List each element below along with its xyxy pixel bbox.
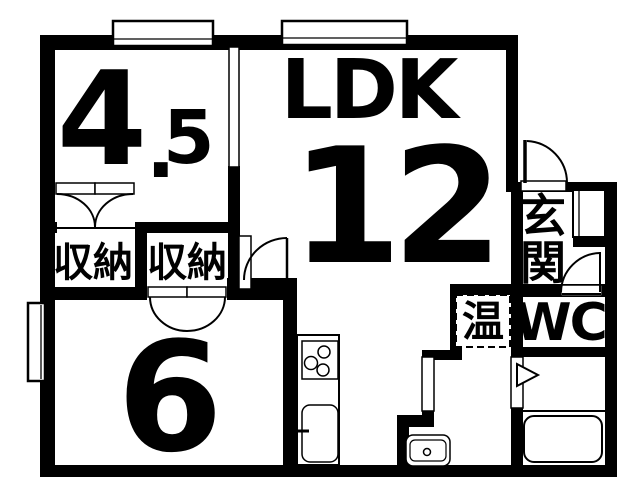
closet2-door-leaf-right bbox=[187, 287, 226, 297]
kitchen-sink bbox=[302, 405, 338, 462]
wall-room6-top-west bbox=[40, 287, 147, 300]
water-heater-label: 温 bbox=[462, 297, 504, 346]
washroom-doorway bbox=[422, 357, 434, 411]
room6-size-label: 6 bbox=[117, 309, 223, 486]
floor-plan-drawing: 4 . 5 LDK 12 収納 収納 6 玄 関 WC 温 bbox=[0, 0, 640, 495]
floor-plan: 4 . 5 LDK 12 収納 収納 6 玄 関 WC 温 bbox=[0, 0, 640, 495]
window-room6 bbox=[28, 303, 45, 381]
room45-size-label: 4 bbox=[57, 43, 147, 195]
stove-burner bbox=[317, 364, 329, 376]
door-panel-ldk-room6 bbox=[239, 236, 251, 289]
ldk-size-label: 12 bbox=[291, 113, 494, 300]
entrance-label-char2: 関 bbox=[520, 236, 566, 290]
wall-room6-right bbox=[283, 280, 297, 470]
wall-closet2-top bbox=[143, 222, 237, 233]
shoe-cabinet bbox=[573, 190, 605, 237]
wc-label: WC bbox=[514, 293, 606, 353]
entrance-label-char1: 玄 bbox=[520, 189, 566, 243]
closet2-door-leaf-left bbox=[148, 287, 187, 297]
wall-ldk-right bbox=[506, 35, 518, 192]
sliding-partition-room45-ldk bbox=[229, 47, 239, 167]
closet-right-label: 収納 bbox=[147, 240, 227, 286]
room45-size-fraction: 5 bbox=[163, 95, 215, 181]
wash-basin-drain bbox=[424, 449, 431, 456]
bathtub bbox=[524, 416, 602, 462]
wall-bath-left bbox=[511, 408, 523, 467]
window-ldk bbox=[282, 21, 407, 45]
wall-cabinet-bottom bbox=[573, 237, 605, 247]
closet-left-label: 収納 bbox=[53, 240, 133, 286]
wall-room45-bottom-stub bbox=[40, 222, 57, 233]
wall-right bbox=[605, 182, 617, 477]
stove-burner bbox=[318, 346, 330, 358]
stove-burner bbox=[305, 357, 318, 370]
